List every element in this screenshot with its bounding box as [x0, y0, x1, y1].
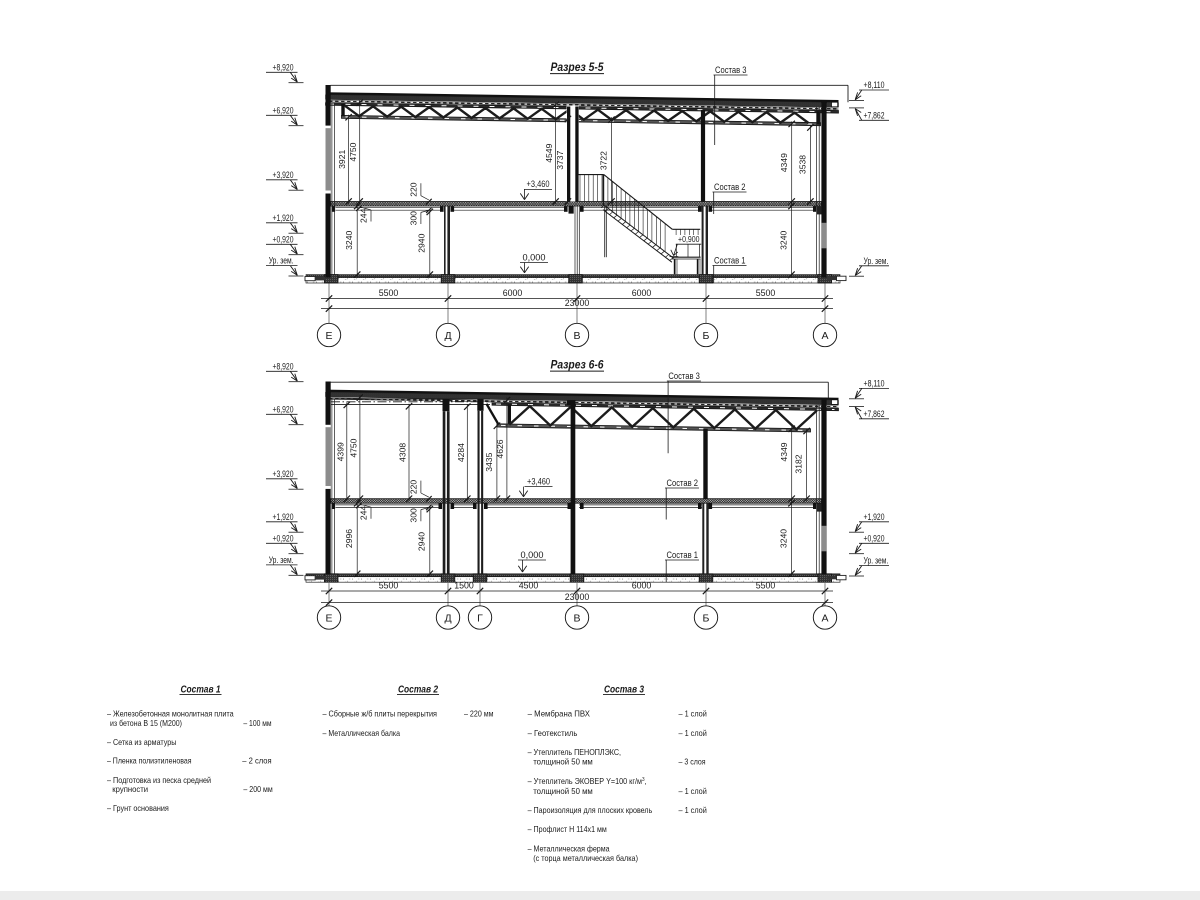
- svg-text:– Утеплитель ЭКОВЕР Y=100 кг/м: – Утеплитель ЭКОВЕР Y=100 кг/м3,: [528, 776, 647, 786]
- svg-text:– Железобетонная монолитная п: – Железобетонная монолитная плита: [107, 708, 234, 718]
- svg-text:+1,920: +1,920: [273, 213, 294, 223]
- svg-text:– 200 мм: – 200 мм: [243, 784, 272, 794]
- svg-text:Ур. зем.: Ур. зем.: [864, 256, 889, 266]
- svg-text:5500: 5500: [379, 288, 399, 298]
- svg-text:– 220 мм: – 220 мм: [464, 708, 494, 718]
- svg-text:300: 300: [408, 211, 418, 226]
- svg-text:+6,920: +6,920: [273, 105, 294, 115]
- svg-text:5500: 5500: [756, 580, 776, 590]
- svg-text:Е: Е: [325, 612, 332, 624]
- svg-text:крупности: крупности: [112, 784, 148, 794]
- svg-text:(с торца металлическая балка): (с торца металлическая балка): [533, 853, 638, 863]
- svg-text:Разрез 6-6: Разрез 6-6: [551, 359, 605, 371]
- svg-text:Е: Е: [325, 330, 332, 342]
- svg-text:А: А: [821, 330, 828, 342]
- svg-text:+8,110: +8,110: [864, 379, 885, 389]
- svg-text:+1,920: +1,920: [273, 512, 294, 522]
- svg-text:+3,920: +3,920: [273, 469, 294, 479]
- svg-text:+6,920: +6,920: [273, 404, 294, 414]
- svg-text:2940: 2940: [416, 233, 426, 252]
- svg-text:3921: 3921: [337, 150, 347, 169]
- svg-text:толщиной 50 мм: толщиной 50 мм: [533, 786, 593, 796]
- svg-text:из бетона В 15 (М200): из бетона В 15 (М200): [110, 718, 182, 728]
- svg-text:3435: 3435: [484, 452, 494, 471]
- svg-text:4349: 4349: [779, 442, 789, 461]
- svg-text:4626: 4626: [495, 439, 505, 458]
- svg-text:В: В: [573, 330, 580, 342]
- svg-text:Г: Г: [477, 612, 483, 624]
- svg-text:6000: 6000: [632, 580, 652, 590]
- svg-text:+0,920: +0,920: [273, 234, 294, 244]
- svg-text:Состав 3: Состав 3: [668, 371, 700, 381]
- svg-text:Ур. зем.: Ур. зем.: [269, 555, 294, 565]
- svg-text:+7,862: +7,862: [864, 111, 885, 121]
- svg-text:4349: 4349: [779, 153, 789, 172]
- svg-text:– 1 слой: – 1 слой: [679, 786, 708, 796]
- svg-text:23000: 23000: [565, 298, 590, 308]
- svg-text:3240: 3240: [779, 529, 789, 548]
- svg-text:300: 300: [408, 508, 418, 523]
- svg-text:3538: 3538: [798, 155, 808, 174]
- svg-text:+0,920: +0,920: [273, 533, 294, 543]
- svg-text:4500: 4500: [519, 580, 539, 590]
- svg-text:В: В: [573, 612, 580, 624]
- svg-text:+0,900: +0,900: [678, 234, 700, 244]
- svg-text:+8,920: +8,920: [273, 62, 294, 72]
- svg-text:Состав 2: Состав 2: [398, 684, 438, 695]
- svg-text:Состав 2: Состав 2: [714, 182, 746, 192]
- svg-text:Состав 1: Состав 1: [714, 256, 746, 266]
- svg-text:244: 244: [358, 506, 368, 521]
- svg-text:4750: 4750: [348, 142, 358, 161]
- svg-text:– Сетка из арматуры: – Сетка из арматуры: [107, 737, 176, 747]
- svg-text:244: 244: [358, 208, 368, 223]
- svg-text:2996: 2996: [344, 529, 354, 548]
- svg-text:– Геотекстиль: – Геотекстиль: [528, 728, 578, 738]
- svg-text:Д: Д: [444, 612, 451, 624]
- svg-text:– Металлическая ферма: – Металлическая ферма: [528, 843, 610, 853]
- svg-text:23000: 23000: [565, 592, 590, 602]
- svg-text:– 100 мм: – 100 мм: [243, 718, 271, 728]
- svg-text:3240: 3240: [344, 231, 354, 250]
- svg-text:0,000: 0,000: [521, 550, 544, 560]
- svg-text:Разрез 5-5: Разрез 5-5: [551, 62, 605, 74]
- svg-text:толщиной 50 мм: толщиной 50 мм: [533, 757, 593, 767]
- svg-text:– Утеплитель ПЕНОПЛЭКС,: – Утеплитель ПЕНОПЛЭКС,: [528, 747, 621, 757]
- svg-text:5500: 5500: [379, 580, 399, 590]
- svg-text:Состав 1: Состав 1: [667, 550, 699, 560]
- svg-text:Д: Д: [444, 330, 451, 342]
- svg-text:А: А: [821, 612, 828, 624]
- svg-text:1500: 1500: [454, 580, 474, 590]
- svg-text:+8,920: +8,920: [273, 361, 294, 371]
- svg-text:0,000: 0,000: [523, 252, 546, 262]
- svg-text:– 1 слой: – 1 слой: [679, 708, 708, 718]
- svg-text:4308: 4308: [398, 443, 408, 462]
- svg-text:Ур. зем.: Ур. зем.: [864, 556, 889, 566]
- svg-text:+1,920: +1,920: [864, 512, 885, 522]
- svg-text:– Пароизоляция для плоских кро: – Пароизоляция для плоских кровель: [528, 805, 653, 815]
- svg-text:3722: 3722: [599, 151, 609, 170]
- svg-text:+3,920: +3,920: [273, 170, 294, 180]
- svg-text:Б: Б: [703, 330, 710, 342]
- svg-text:+0,920: +0,920: [864, 533, 885, 543]
- svg-text:220: 220: [409, 182, 419, 197]
- svg-text:220: 220: [408, 480, 418, 495]
- svg-text:6000: 6000: [632, 288, 652, 298]
- svg-text:Состав 3: Состав 3: [715, 65, 747, 75]
- svg-text:2940: 2940: [416, 532, 426, 551]
- svg-text:4399: 4399: [335, 442, 345, 461]
- svg-text:5500: 5500: [756, 288, 776, 298]
- svg-text:4549: 4549: [544, 143, 554, 162]
- svg-text:+8,110: +8,110: [864, 80, 885, 90]
- svg-text:– Пленка полиэтиленовая: – Пленка полиэтиленовая: [107, 756, 192, 766]
- svg-text:+3,460: +3,460: [527, 179, 550, 189]
- svg-text:– Металлическая балка: – Металлическая балка: [323, 728, 401, 738]
- svg-text:– Профлист Н 114х1 мм: – Профлист Н 114х1 мм: [528, 824, 607, 834]
- svg-text:– 1 слой: – 1 слой: [679, 728, 708, 738]
- svg-text:– 3 слоя: – 3 слоя: [679, 757, 706, 767]
- svg-text:6000: 6000: [503, 288, 523, 298]
- svg-text:3737: 3737: [555, 150, 565, 169]
- svg-text:Состав 1: Состав 1: [181, 684, 221, 695]
- svg-text:4284: 4284: [456, 443, 466, 462]
- svg-text:Состав 3: Состав 3: [604, 684, 644, 695]
- svg-text:– Сборные ж/б плиты перекрытия: – Сборные ж/б плиты перекрытия: [323, 708, 438, 718]
- svg-text:Б: Б: [703, 612, 710, 624]
- svg-text:4750: 4750: [348, 438, 358, 457]
- svg-text:+3,460: +3,460: [527, 476, 550, 486]
- svg-text:Состав 2: Состав 2: [667, 478, 699, 488]
- svg-text:– 1 слой: – 1 слой: [679, 805, 708, 815]
- svg-text:3182: 3182: [794, 454, 804, 473]
- svg-text:3240: 3240: [779, 231, 789, 250]
- svg-text:– Грунт основания: – Грунт основания: [107, 803, 169, 813]
- svg-text:– Мембрана ПВХ: – Мембрана ПВХ: [528, 708, 591, 718]
- svg-text:– 2 слоя: – 2 слоя: [242, 756, 272, 766]
- svg-text:+7,862: +7,862: [864, 409, 885, 419]
- svg-text:Ур. зем.: Ур. зем.: [269, 256, 294, 266]
